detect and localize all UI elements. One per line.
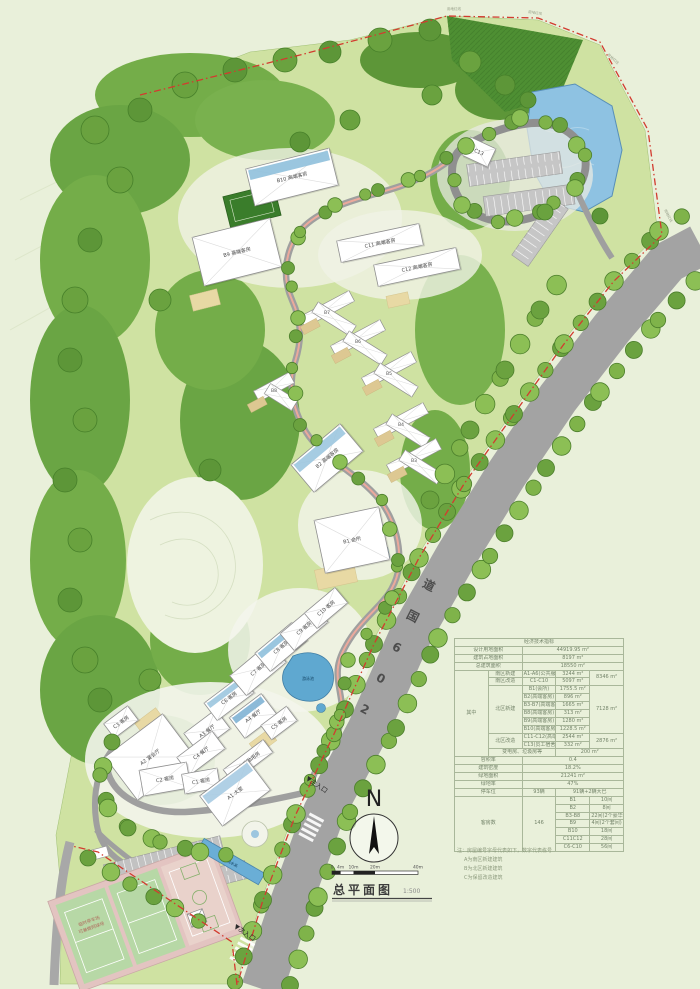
tree (392, 554, 405, 567)
table-cell: 4间(2个套间) (590, 820, 624, 828)
tree (68, 528, 92, 552)
table-cell: 0.4 (522, 757, 623, 765)
tree (288, 386, 303, 401)
table-cell: C1-C10 (522, 678, 556, 686)
table-cell: 绿地率 (455, 781, 523, 789)
legend-notes: 注：房屋编号字母代表如下，数字代表栋号 A为南区新建建筑 B为北区新建建筑 C为… (457, 847, 552, 883)
tree (341, 653, 356, 668)
table-cell: 21241 m² (522, 773, 623, 781)
economic-indicators-table: 经济技术指标设计用地面积44919.95 m²建筑占地面积8197 m²总建筑面… (454, 638, 624, 852)
tree (289, 950, 308, 969)
tree (609, 363, 624, 378)
tree (491, 215, 504, 228)
table-cell: 5097 m² (556, 678, 590, 686)
site-plan-stage: 临时停车场 可兼做网球场 景观水系 游泳池 (0, 0, 700, 989)
tree (149, 289, 171, 311)
tree (591, 383, 610, 402)
tree (72, 647, 98, 673)
table-cell: B9(高端客房) (522, 717, 556, 725)
table-cell: 8346 m² (590, 670, 624, 686)
north-letter: N (366, 787, 382, 812)
tree (123, 877, 137, 891)
tree (219, 848, 233, 862)
table-cell: 146 (522, 796, 556, 851)
table-cell: 客房数 (455, 796, 523, 851)
table-cell: 南区改造 (488, 678, 522, 686)
tree (99, 799, 117, 817)
table-cell: A1-A6(公共服务) (522, 670, 556, 678)
tree (290, 132, 310, 152)
table-cell: 变电房、垃圾房等 (488, 749, 556, 757)
tree (422, 646, 439, 663)
table-cell: 28间 (590, 836, 624, 844)
scale-tick-label: 40m (413, 865, 423, 871)
table-cell: 93辆 (522, 788, 556, 796)
tree (435, 464, 455, 484)
table-cell: B2 (556, 804, 590, 812)
table-cell: 18.2% (522, 765, 623, 773)
scale-tick-label: 4m (337, 865, 344, 871)
tree (286, 362, 297, 373)
tree (461, 421, 479, 439)
table-cell: 1228.5 m² (556, 725, 590, 733)
tree (107, 167, 133, 193)
tree (359, 652, 374, 667)
tree (458, 138, 475, 155)
tree (454, 197, 471, 214)
table-cell: 22间(2个豪华套间) (590, 812, 624, 820)
tree (58, 348, 82, 372)
tree (414, 170, 425, 181)
table-cell: 7128 m² (590, 686, 624, 733)
tree (153, 835, 167, 849)
tree (512, 110, 529, 127)
tree (538, 460, 555, 477)
tree (520, 92, 536, 108)
table-cell: 建筑密度 (455, 765, 523, 773)
tree (360, 189, 371, 200)
table-cell: 91辆+2辆大巴 (556, 788, 624, 796)
tree (291, 311, 306, 326)
tree (459, 51, 481, 73)
note-line: 注：房屋编号字母代表如下，数字代表栋号 (457, 847, 552, 856)
tree (376, 494, 387, 505)
tree (62, 287, 88, 313)
tree (440, 151, 453, 164)
table-cell: B3-B8 (556, 812, 590, 820)
table-cell: B10(高端客房) (522, 725, 556, 733)
tree (422, 85, 442, 105)
tree (382, 522, 397, 537)
table-cell: 1665 m² (556, 702, 590, 710)
table-cell: 停车位 (455, 788, 523, 796)
scale-tick-label: 0 (331, 865, 334, 871)
table-cell: 2544 m² (556, 733, 590, 741)
table-cell: 8197 m² (522, 654, 623, 662)
tree (139, 669, 161, 691)
tree (401, 173, 416, 188)
fountain (251, 830, 259, 838)
tree (526, 480, 541, 495)
tree (172, 72, 198, 98)
scale-tick-label: 20m (370, 865, 380, 871)
table-cell: 8间 (590, 804, 624, 812)
tree (319, 41, 341, 63)
tree (552, 437, 571, 456)
tree (537, 204, 553, 220)
tree (475, 394, 495, 414)
tree (496, 525, 513, 542)
building-label-B4: B4 (398, 422, 404, 428)
tree (495, 75, 515, 95)
tree (421, 491, 439, 509)
tree (668, 292, 685, 309)
note-line: C为保留改造建筑 (457, 874, 552, 883)
scale-tick-label: 10m (348, 865, 358, 871)
tree (146, 889, 162, 905)
table-cell: 313 m² (556, 710, 590, 718)
table-cell: C11-C12(高端客房) (522, 733, 556, 741)
table-cell: 200 m² (556, 749, 624, 757)
tree (510, 501, 529, 520)
table-cell: 1280 m² (556, 717, 590, 725)
tree (289, 330, 302, 343)
pool-label: 游泳池 (302, 675, 314, 681)
table-cell: 44919.95 m² (522, 646, 623, 654)
tree (452, 440, 468, 456)
tree (294, 419, 307, 432)
table-cell: 南区新建 (488, 670, 522, 678)
tree (429, 629, 448, 648)
tree (53, 468, 77, 492)
tree (282, 262, 295, 275)
tree (372, 184, 385, 197)
tree (104, 734, 120, 750)
tree (255, 892, 272, 909)
tree (625, 341, 642, 358)
tree (93, 768, 107, 782)
tree (398, 694, 417, 713)
table-cell: 经济技术指标 (455, 639, 624, 647)
tree (567, 180, 584, 197)
building-label-B8: B8 (271, 388, 277, 394)
table-cell: B10 (556, 828, 590, 836)
tree (311, 435, 322, 446)
tree (445, 607, 460, 622)
tree (80, 850, 96, 866)
table-cell: 其中 (455, 670, 489, 757)
plan-title: 总平面图 (333, 882, 393, 897)
table-cell: 设计用地面积 (455, 646, 523, 654)
tree (227, 974, 242, 989)
table-cell: B9 (556, 820, 590, 828)
tree (263, 865, 282, 884)
tree (328, 198, 343, 213)
tree (539, 116, 552, 129)
tree (506, 210, 523, 227)
tree (361, 628, 372, 639)
tree (294, 226, 305, 237)
table-cell: 建筑占地面积 (455, 654, 523, 662)
note-line: A为南区新建建筑 (457, 856, 552, 865)
table-cell: 47% (522, 781, 623, 789)
tree (223, 58, 247, 82)
tree (458, 584, 475, 601)
tree (496, 361, 514, 379)
building-label-B6: B6 (355, 339, 361, 345)
tree (191, 843, 209, 861)
tree (411, 671, 426, 686)
tree (388, 720, 405, 737)
tree (287, 805, 306, 824)
tree (482, 548, 497, 563)
table-cell: 3244 m² (556, 670, 590, 678)
table-cell: B8(高端客房) (522, 710, 556, 718)
kids-pool (317, 704, 326, 713)
table-cell: 18550 m² (522, 662, 623, 670)
tree (410, 549, 429, 568)
tree (88, 688, 112, 712)
tree (329, 838, 346, 855)
table-cell: B3-B7(高端客房) (522, 702, 556, 710)
tree (199, 459, 221, 481)
table-cell: 北区改造 (488, 733, 522, 749)
tree (299, 926, 314, 941)
tree (592, 208, 608, 224)
tree (78, 228, 102, 252)
tree (120, 820, 136, 836)
tree (286, 281, 297, 292)
tree (273, 48, 297, 72)
table-cell: C13(员工宿舍) (522, 741, 556, 749)
tree (456, 476, 471, 491)
table-cell: 56间 (590, 844, 624, 852)
tree (510, 334, 530, 354)
tree (58, 588, 82, 612)
building-label-B5: B5 (386, 371, 392, 377)
tree (385, 591, 400, 606)
table-cell: 10间 (590, 796, 624, 804)
tree (102, 863, 120, 881)
tree (338, 677, 351, 690)
table-cell: 332 m² (556, 741, 590, 749)
tree (342, 804, 357, 819)
building-label-B3: B3 (411, 458, 417, 464)
boundary-vertex-label: 用地红线 (447, 6, 461, 11)
table-cell: B1(会所) (522, 686, 556, 694)
tree (605, 272, 624, 291)
table-cell: 容积率 (455, 757, 523, 765)
tree (340, 110, 360, 130)
tree (482, 127, 495, 140)
table-cell: B1 (556, 796, 590, 804)
tree (650, 312, 665, 327)
table-cell: 2876 m² (590, 733, 624, 749)
table-cell: 绿地面积 (455, 773, 523, 781)
tree (553, 118, 568, 133)
tree (624, 253, 639, 268)
table-cell: 北区新建 (488, 686, 522, 733)
tree (578, 148, 591, 161)
tree (448, 173, 461, 186)
building-label-B7: B7 (324, 310, 330, 316)
tree (570, 416, 585, 431)
tree (177, 840, 193, 856)
table-cell: C11C12 (556, 836, 590, 844)
table-cell: 1755.5 m² (556, 686, 590, 694)
note-line: B为北区新建建筑 (457, 865, 552, 874)
tree (309, 888, 328, 907)
table-cell: C6-C10 (556, 844, 590, 852)
table-cell: 总建筑面积 (455, 662, 523, 670)
tree (531, 301, 549, 319)
table-cell: B2(高端客房) (522, 694, 556, 702)
tree (128, 98, 152, 122)
plan-scale: 1:500 (403, 888, 420, 895)
tree (333, 455, 348, 470)
tree (674, 209, 689, 224)
tree (352, 472, 365, 485)
tree (81, 116, 109, 144)
tree (547, 275, 567, 295)
table-cell: 896 m² (556, 694, 590, 702)
tree (73, 408, 97, 432)
tree (368, 28, 392, 52)
tree (367, 755, 386, 774)
table-cell: 18间 (590, 828, 624, 836)
